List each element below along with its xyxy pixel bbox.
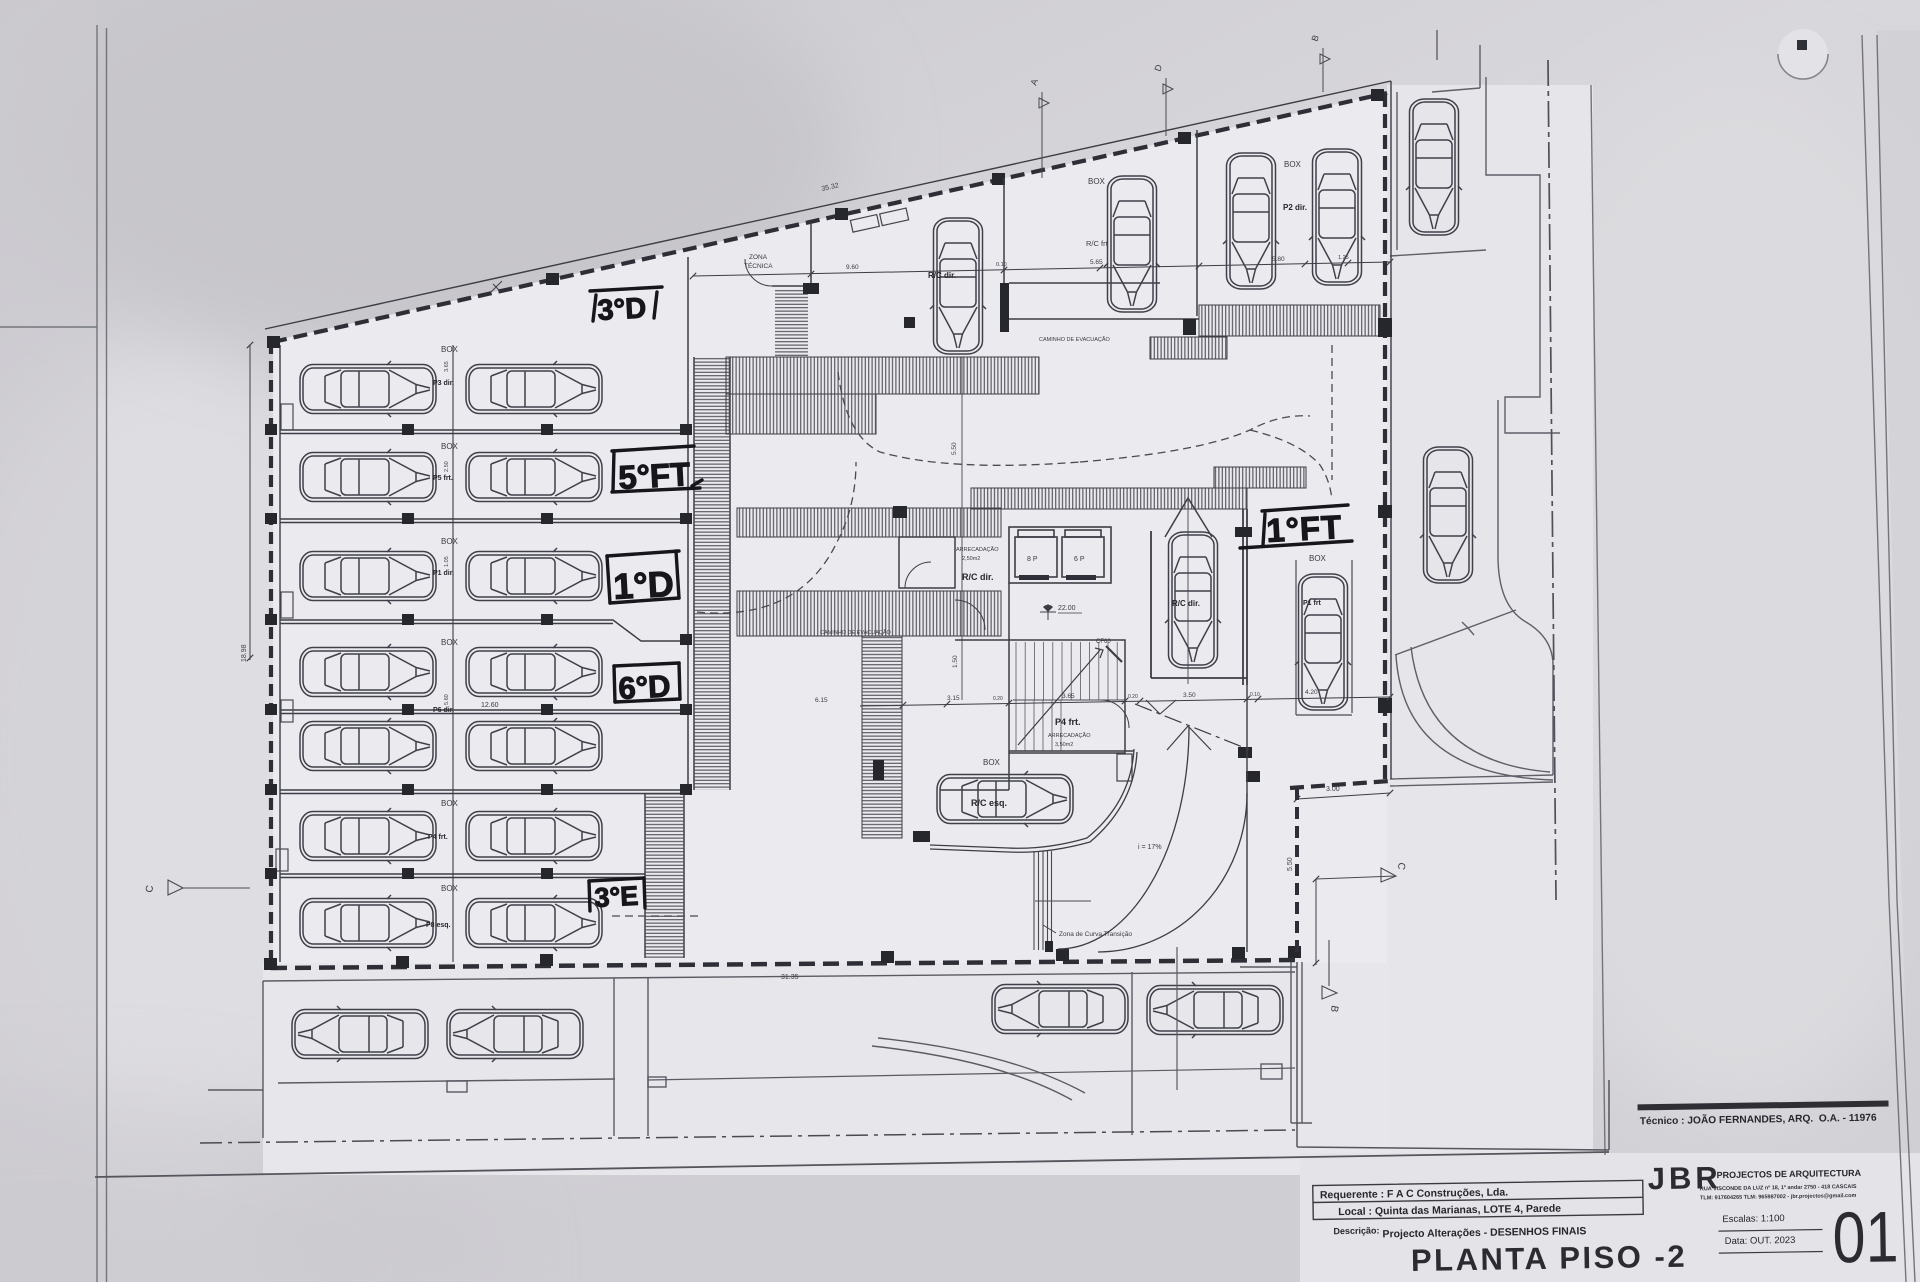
svg-text:Descrição:: Descrição: <box>1333 1225 1379 1236</box>
svg-text:18.98: 18.98 <box>241 644 248 662</box>
svg-text:1°FT: 1°FT <box>1265 508 1343 549</box>
svg-text:CAMINHO DE EVACUAÇÃO: CAMINHO DE EVACUAÇÃO <box>1039 336 1111 343</box>
svg-text:5.65: 5.65 <box>1090 259 1103 266</box>
svg-text:CF60: CF60 <box>1096 639 1111 645</box>
svg-text:3.50: 3.50 <box>1183 692 1196 699</box>
svg-text:0.20: 0.20 <box>1128 694 1138 700</box>
svg-text:R/C dir.: R/C dir. <box>962 572 994 582</box>
svg-text:5°FT: 5°FT <box>617 455 691 496</box>
svg-text:6.15: 6.15 <box>815 697 828 704</box>
svg-text:3.00: 3.00 <box>1326 786 1340 793</box>
svg-text:ARRECADAÇÃO: ARRECADAÇÃO <box>956 546 999 553</box>
svg-text:P1 dir.: P1 dir. <box>433 570 454 577</box>
svg-text:BOX: BOX <box>441 638 459 647</box>
svg-text:3.15: 3.15 <box>947 695 960 702</box>
svg-text:Escalas: 1:100: Escalas: 1:100 <box>1722 1213 1784 1225</box>
svg-text:BOX: BOX <box>441 884 459 893</box>
svg-text:P5 frt.: P5 frt. <box>433 475 453 482</box>
svg-text:i = 17%: i = 17% <box>1138 844 1162 851</box>
svg-text:1.50: 1.50 <box>952 655 959 668</box>
svg-text:BOX: BOX <box>441 345 459 354</box>
svg-text:22.00: 22.00 <box>1058 605 1076 612</box>
svg-text:BOX: BOX <box>441 799 459 808</box>
svg-text:6°D: 6°D <box>618 668 672 706</box>
svg-text:P3 dir.: P3 dir. <box>433 380 454 387</box>
svg-text:5.50: 5.50 <box>1287 857 1294 871</box>
svg-text:BOX: BOX <box>983 758 1001 767</box>
svg-text:0.20: 0.20 <box>993 696 1003 702</box>
svg-text:6 P: 6 P <box>1074 556 1085 563</box>
svg-text:1°D: 1°D <box>612 563 674 607</box>
svg-text:5.80: 5.80 <box>1272 256 1285 263</box>
svg-text:Data: OUT. 2023: Data: OUT. 2023 <box>1725 1235 1796 1247</box>
svg-text:3,50m2: 3,50m2 <box>1055 742 1073 748</box>
svg-text:01: 01 <box>1832 1196 1899 1278</box>
svg-text:TÉCNICA: TÉCNICA <box>744 261 773 270</box>
svg-text:3°D: 3°D <box>597 292 647 327</box>
svg-text:31.35: 31.35 <box>781 974 799 981</box>
svg-text:BOX: BOX <box>441 442 459 451</box>
svg-text:CAMINHO DE EVACUAÇÃO: CAMINHO DE EVACUAÇÃO <box>820 629 892 636</box>
svg-text:Zona de Curva Transição: Zona de Curva Transição <box>1059 931 1132 938</box>
svg-text:P4 frt.: P4 frt. <box>1055 717 1081 727</box>
svg-text:R/C frt: R/C frt <box>1086 239 1109 248</box>
svg-text:BOX: BOX <box>1088 177 1106 186</box>
svg-text:8 P: 8 P <box>1027 556 1038 563</box>
svg-text:P4 frt.: P4 frt. <box>428 834 448 841</box>
svg-text:5.60: 5.60 <box>444 694 450 705</box>
svg-text:3.65: 3.65 <box>1062 693 1075 700</box>
svg-text:R/C esq.: R/C esq. <box>971 798 1007 808</box>
svg-text:P6 dir.: P6 dir. <box>433 707 454 714</box>
svg-text:ARRECADAÇÃO: ARRECADAÇÃO <box>1048 732 1091 739</box>
svg-text:P8 esq.: P8 esq. <box>426 922 451 929</box>
svg-text:5.50: 5.50 <box>951 442 958 455</box>
svg-text:3°E: 3°E <box>594 881 639 913</box>
svg-text:2,50m2: 2,50m2 <box>962 556 980 562</box>
svg-text:R/C dir.: R/C dir. <box>928 271 956 280</box>
svg-text:4.20: 4.20 <box>1305 689 1318 696</box>
svg-text:BOX: BOX <box>441 537 459 546</box>
svg-text:PLANTA PISO -2: PLANTA PISO -2 <box>1411 1239 1688 1278</box>
svg-text:0.10: 0.10 <box>996 262 1007 268</box>
svg-text:1.05: 1.05 <box>444 556 450 567</box>
svg-text:BOX: BOX <box>1309 554 1327 563</box>
svg-text:0.10: 0.10 <box>1250 692 1260 698</box>
svg-text:R/C dir.: R/C dir. <box>1172 599 1200 608</box>
svg-text:P2 dir.: P2 dir. <box>1283 203 1307 212</box>
svg-text:ZONA: ZONA <box>749 254 768 261</box>
svg-text:P1 frt: P1 frt <box>1303 600 1322 607</box>
svg-text:2.50: 2.50 <box>444 461 450 472</box>
svg-text:9.60: 9.60 <box>846 264 859 271</box>
svg-text:12.60: 12.60 <box>481 702 499 709</box>
svg-text:3.65: 3.65 <box>444 361 450 372</box>
svg-text:BOX: BOX <box>1284 160 1302 169</box>
